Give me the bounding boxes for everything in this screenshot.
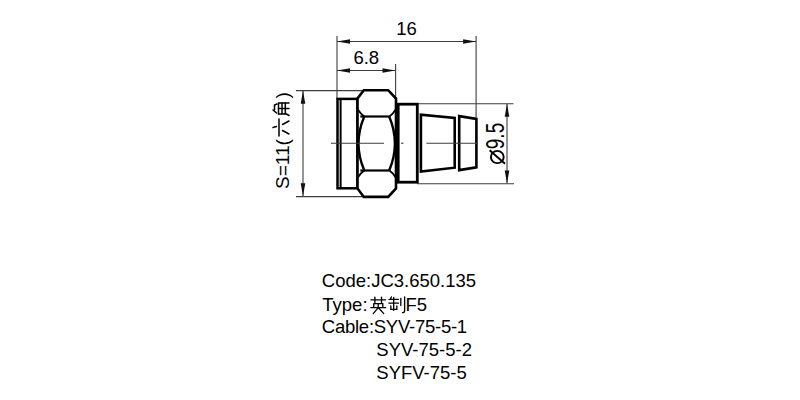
- svg-text:16: 16: [396, 18, 417, 39]
- svg-text:6.8: 6.8: [353, 47, 379, 68]
- svg-text:S=11(: S=11(: [272, 139, 293, 189]
- svg-text:): ): [272, 92, 293, 98]
- svg-text:9.5: 9.5: [481, 123, 509, 149]
